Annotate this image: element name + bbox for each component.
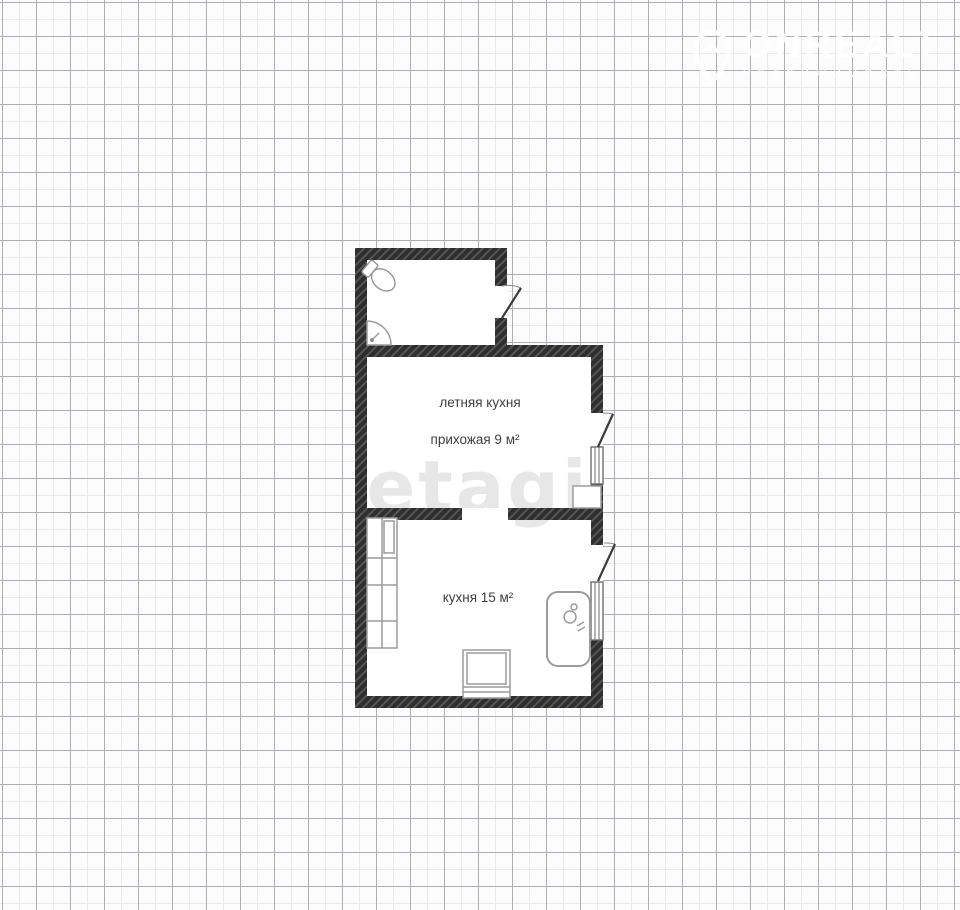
window-kitchen-icon	[591, 582, 603, 640]
kitchen-passage-opening	[462, 508, 508, 520]
counter-icon	[573, 486, 601, 508]
bathtub-icon	[547, 592, 590, 666]
label-hallway: прихожая 9 м²	[431, 432, 520, 447]
floorplan-drawing: etagi	[0, 0, 960, 910]
wall-bathroom-right-upper	[495, 248, 507, 286]
wall-hallway-right-upper	[591, 345, 603, 413]
stove-icon	[463, 650, 510, 698]
label-summer-kitchen: летняя кухня	[439, 395, 520, 410]
wall-hallway-top	[355, 345, 603, 357]
label-kitchen: кухня 15 м²	[443, 590, 514, 605]
wall-bathroom-top	[355, 248, 507, 260]
wall-left	[355, 248, 367, 708]
window-hallway-icon	[591, 447, 603, 484]
wall-kitchen-top-right	[508, 508, 603, 520]
wall-kitchen-right-upper	[591, 520, 603, 545]
cabinets-icon	[367, 518, 397, 648]
floorplan-page: { "logo": { "brand": "ONREALT", "subtitl…	[0, 0, 960, 910]
